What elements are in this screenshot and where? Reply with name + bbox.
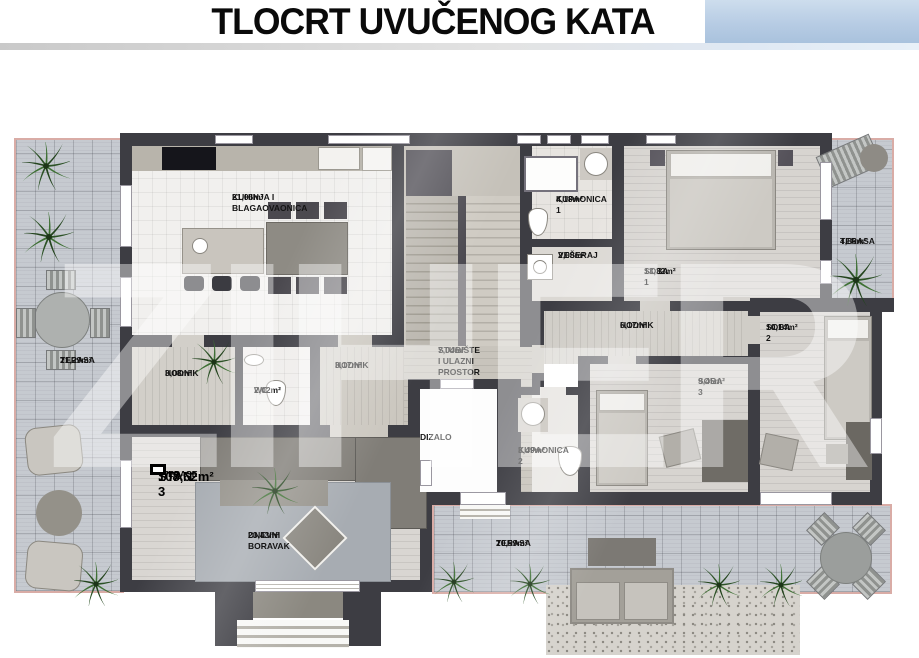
stair-flight-left [406,196,458,346]
wc-sink [244,354,264,366]
bed-pillows [599,393,645,411]
bed-mattress [670,179,772,247]
room-name: DIZALO [420,432,452,443]
dining-chair [324,277,347,294]
floorplan-page: TLOCRT UVUČENOG KATA [0,0,919,658]
sofa-cushion [624,582,668,620]
kitchen-appliance [362,147,392,171]
porch-panel [253,592,343,618]
bar-stool [240,276,260,291]
room-area: 6,17m² [620,320,647,331]
room-area: 21,29m² [60,355,92,366]
dining-chair [268,277,291,294]
stair-void [406,150,452,196]
plant-icon [22,142,70,190]
terrace-table [34,292,90,348]
door-opening [532,345,544,373]
terrace-table [820,532,872,584]
dining-chair [324,202,347,219]
wardrobe-room3 [702,420,748,482]
bar-stool [212,276,232,291]
room-area: 13,32m² [644,266,676,277]
door-opening [330,425,388,437]
room-area: 3,49m² [518,445,545,456]
room-area: 4,86m² [840,236,867,247]
terrace-chair [46,270,76,290]
header-accent-box [705,0,919,43]
washer-door [533,260,547,274]
dining-chair [296,277,319,294]
window [120,277,132,327]
pouf [860,144,888,172]
room-area: 10,14m² [766,322,798,333]
wall [392,133,404,347]
wall [578,364,590,492]
terrace-chair [90,308,110,338]
room-area: 4,18m² [556,194,583,205]
bed-pillows [670,153,772,177]
wall [522,239,612,247]
badge-suffix: +TERASE [158,470,197,479]
desk-room2 [846,422,872,480]
plant-icon [24,212,74,262]
window [120,185,132,247]
window [215,135,253,144]
stair-divider [458,196,466,346]
plant-icon [74,562,118,606]
floorplan: KUHINJA I BLAGAOVAONICA21,06m² KUPAONICA… [10,130,895,658]
chair-room2-small [826,444,848,464]
terrace-steps [460,505,510,519]
dining-table [266,222,348,275]
wall [578,356,760,364]
plant-icon [434,562,474,602]
terrace-chair [16,308,36,338]
outdoor-table [588,538,656,566]
room-area: 3,08m² [165,368,192,379]
door-opening [608,356,636,364]
header: TLOCRT UVUČENOG KATA [0,0,919,44]
room-area: 23,43m² [248,530,280,541]
plant-icon [760,564,802,606]
wall [522,301,832,311]
sofa-cushion [576,582,620,620]
sliding-door [255,580,360,592]
plant-icon [830,254,882,306]
door-opening [640,301,670,311]
cooktop [162,147,216,170]
room-area: 20,59m² [496,538,528,549]
window [760,492,832,505]
room-area: 2,08m² [558,250,585,261]
bath1-sink [584,152,608,176]
elevator-door [440,379,474,389]
window [870,418,882,454]
bar-stool [184,276,204,291]
door-opening [338,335,372,347]
door-opening [540,387,566,395]
header-divider-strip [0,43,919,50]
plant-icon [510,564,550,604]
room-area: 3,17m² [335,360,362,371]
nightstand [650,150,665,166]
window [646,135,676,144]
nightstand [778,150,793,166]
bed-mattress [599,413,645,483]
room-area: 21,06m² [232,192,264,203]
plant-icon [252,468,298,514]
apartment-badge: STAN 3 108,62m² +TERASE [150,464,166,475]
room-area: 7,04m² [438,345,465,356]
chair-room2 [759,433,799,471]
plant-icon [698,564,740,606]
window [328,135,410,144]
window [820,162,832,220]
door-opening [748,316,760,344]
window [547,135,571,144]
entry-door [460,492,506,505]
kitchen-sink [318,147,360,170]
bath2-sink [521,402,545,426]
shower [524,156,578,192]
window [517,135,541,144]
wall [612,133,624,311]
room-area: 2,02m² [254,385,281,396]
island-sink [192,238,208,254]
wall [235,345,243,430]
round-rug [36,490,82,536]
window [581,135,609,144]
terrace-door [120,460,132,528]
entry-steps [237,620,349,648]
wall [310,345,320,430]
stair-flight-right [466,196,522,346]
room-area: 9,45m² [698,376,725,387]
door-opening [420,460,432,486]
lounge-armchair [24,423,85,477]
bed-pillows [827,319,869,339]
